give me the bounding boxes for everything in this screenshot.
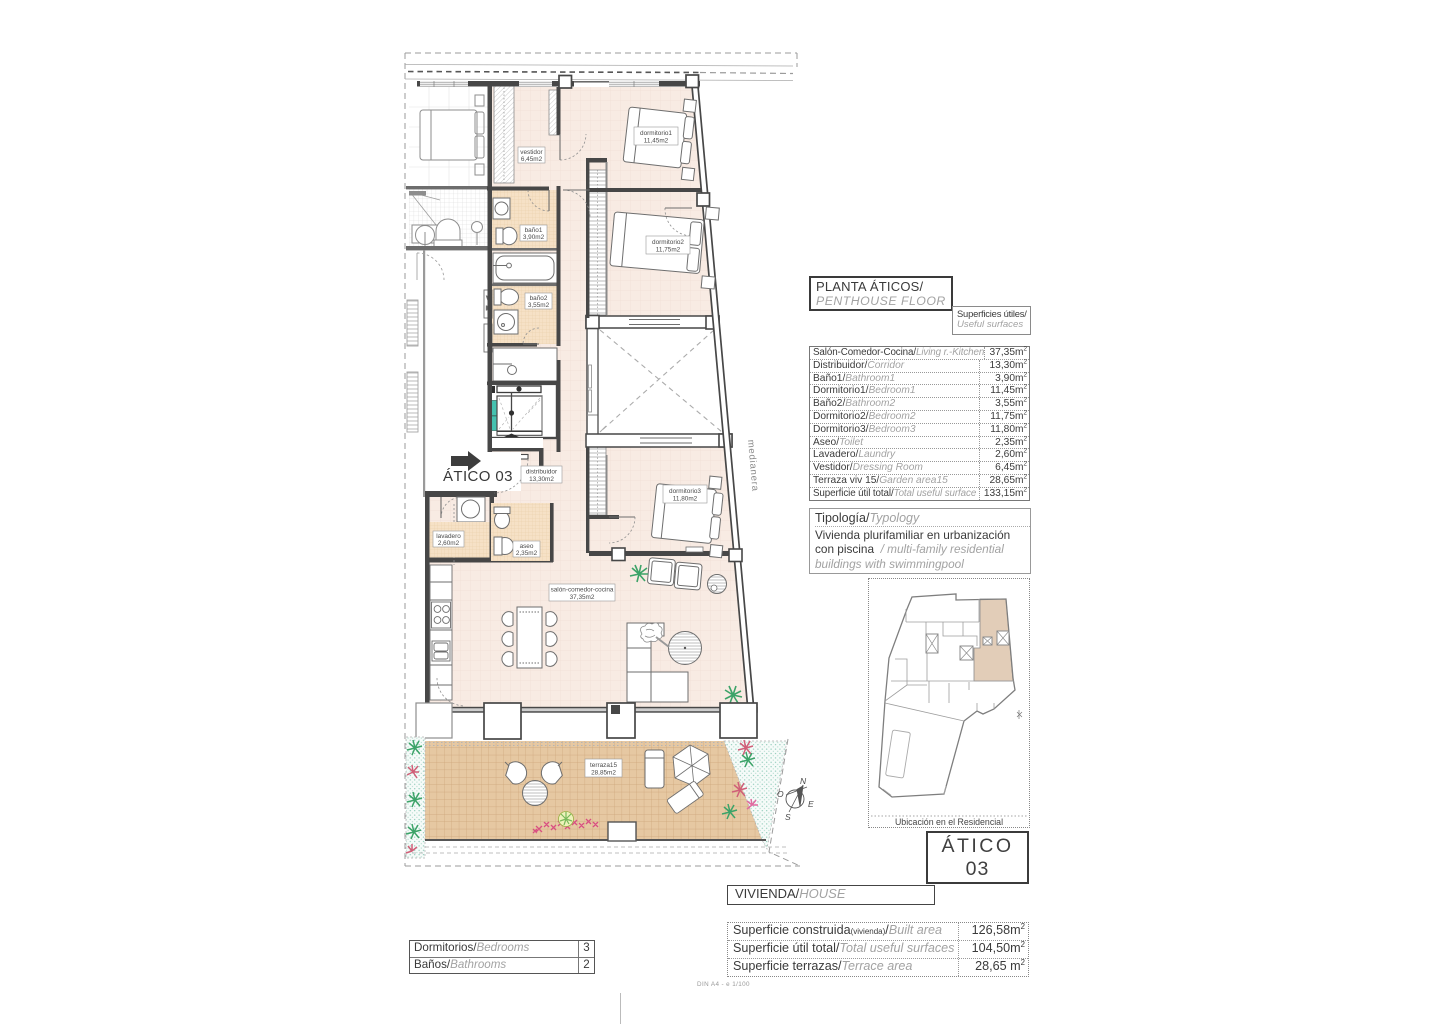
svg-text:dormitorio1: dormitorio1 (640, 130, 672, 137)
svg-text:11,45m2: 11,45m2 (644, 138, 669, 145)
svg-text:N: N (800, 776, 807, 786)
svg-text:baño1: baño1 (525, 227, 543, 234)
svg-text:3,90m2: 3,90m2 (523, 234, 545, 241)
svg-text:salón-comedor-cocina: salón-comedor-cocina (551, 587, 614, 594)
svg-text:6,45m2: 6,45m2 (521, 156, 543, 163)
svg-text:lavadero: lavadero (436, 533, 461, 540)
svg-text:37,35m2: 37,35m2 (570, 594, 595, 601)
svg-text:2,60m2: 2,60m2 (438, 540, 460, 547)
svg-text:O: O (777, 789, 784, 799)
svg-text:dormitorio3: dormitorio3 (669, 488, 701, 495)
svg-text:medianera: medianera (745, 439, 760, 492)
svg-text:distribuidor: distribuidor (526, 469, 558, 476)
svg-text:vestidor: vestidor (520, 149, 543, 156)
svg-text:13,30m2: 13,30m2 (529, 476, 554, 483)
svg-text:Ubicación en el Residencial: Ubicación en el Residencial (895, 817, 1003, 827)
svg-text:E: E (808, 799, 814, 809)
svg-text:2,35m2: 2,35m2 (516, 550, 538, 557)
svg-text:aseo: aseo (520, 543, 534, 550)
svg-text:11,80m2: 11,80m2 (673, 496, 698, 503)
svg-text:28,85m2: 28,85m2 (591, 770, 616, 777)
svg-text:ÁTICO 03: ÁTICO 03 (443, 468, 513, 485)
svg-text:terraza15: terraza15 (590, 762, 617, 769)
svg-text:11,75m2: 11,75m2 (656, 247, 681, 254)
svg-text:baño2: baño2 (530, 295, 548, 302)
svg-text:3,55m2: 3,55m2 (528, 302, 550, 309)
svg-text:dormitorio2: dormitorio2 (652, 239, 684, 246)
svg-text:S: S (785, 812, 791, 822)
